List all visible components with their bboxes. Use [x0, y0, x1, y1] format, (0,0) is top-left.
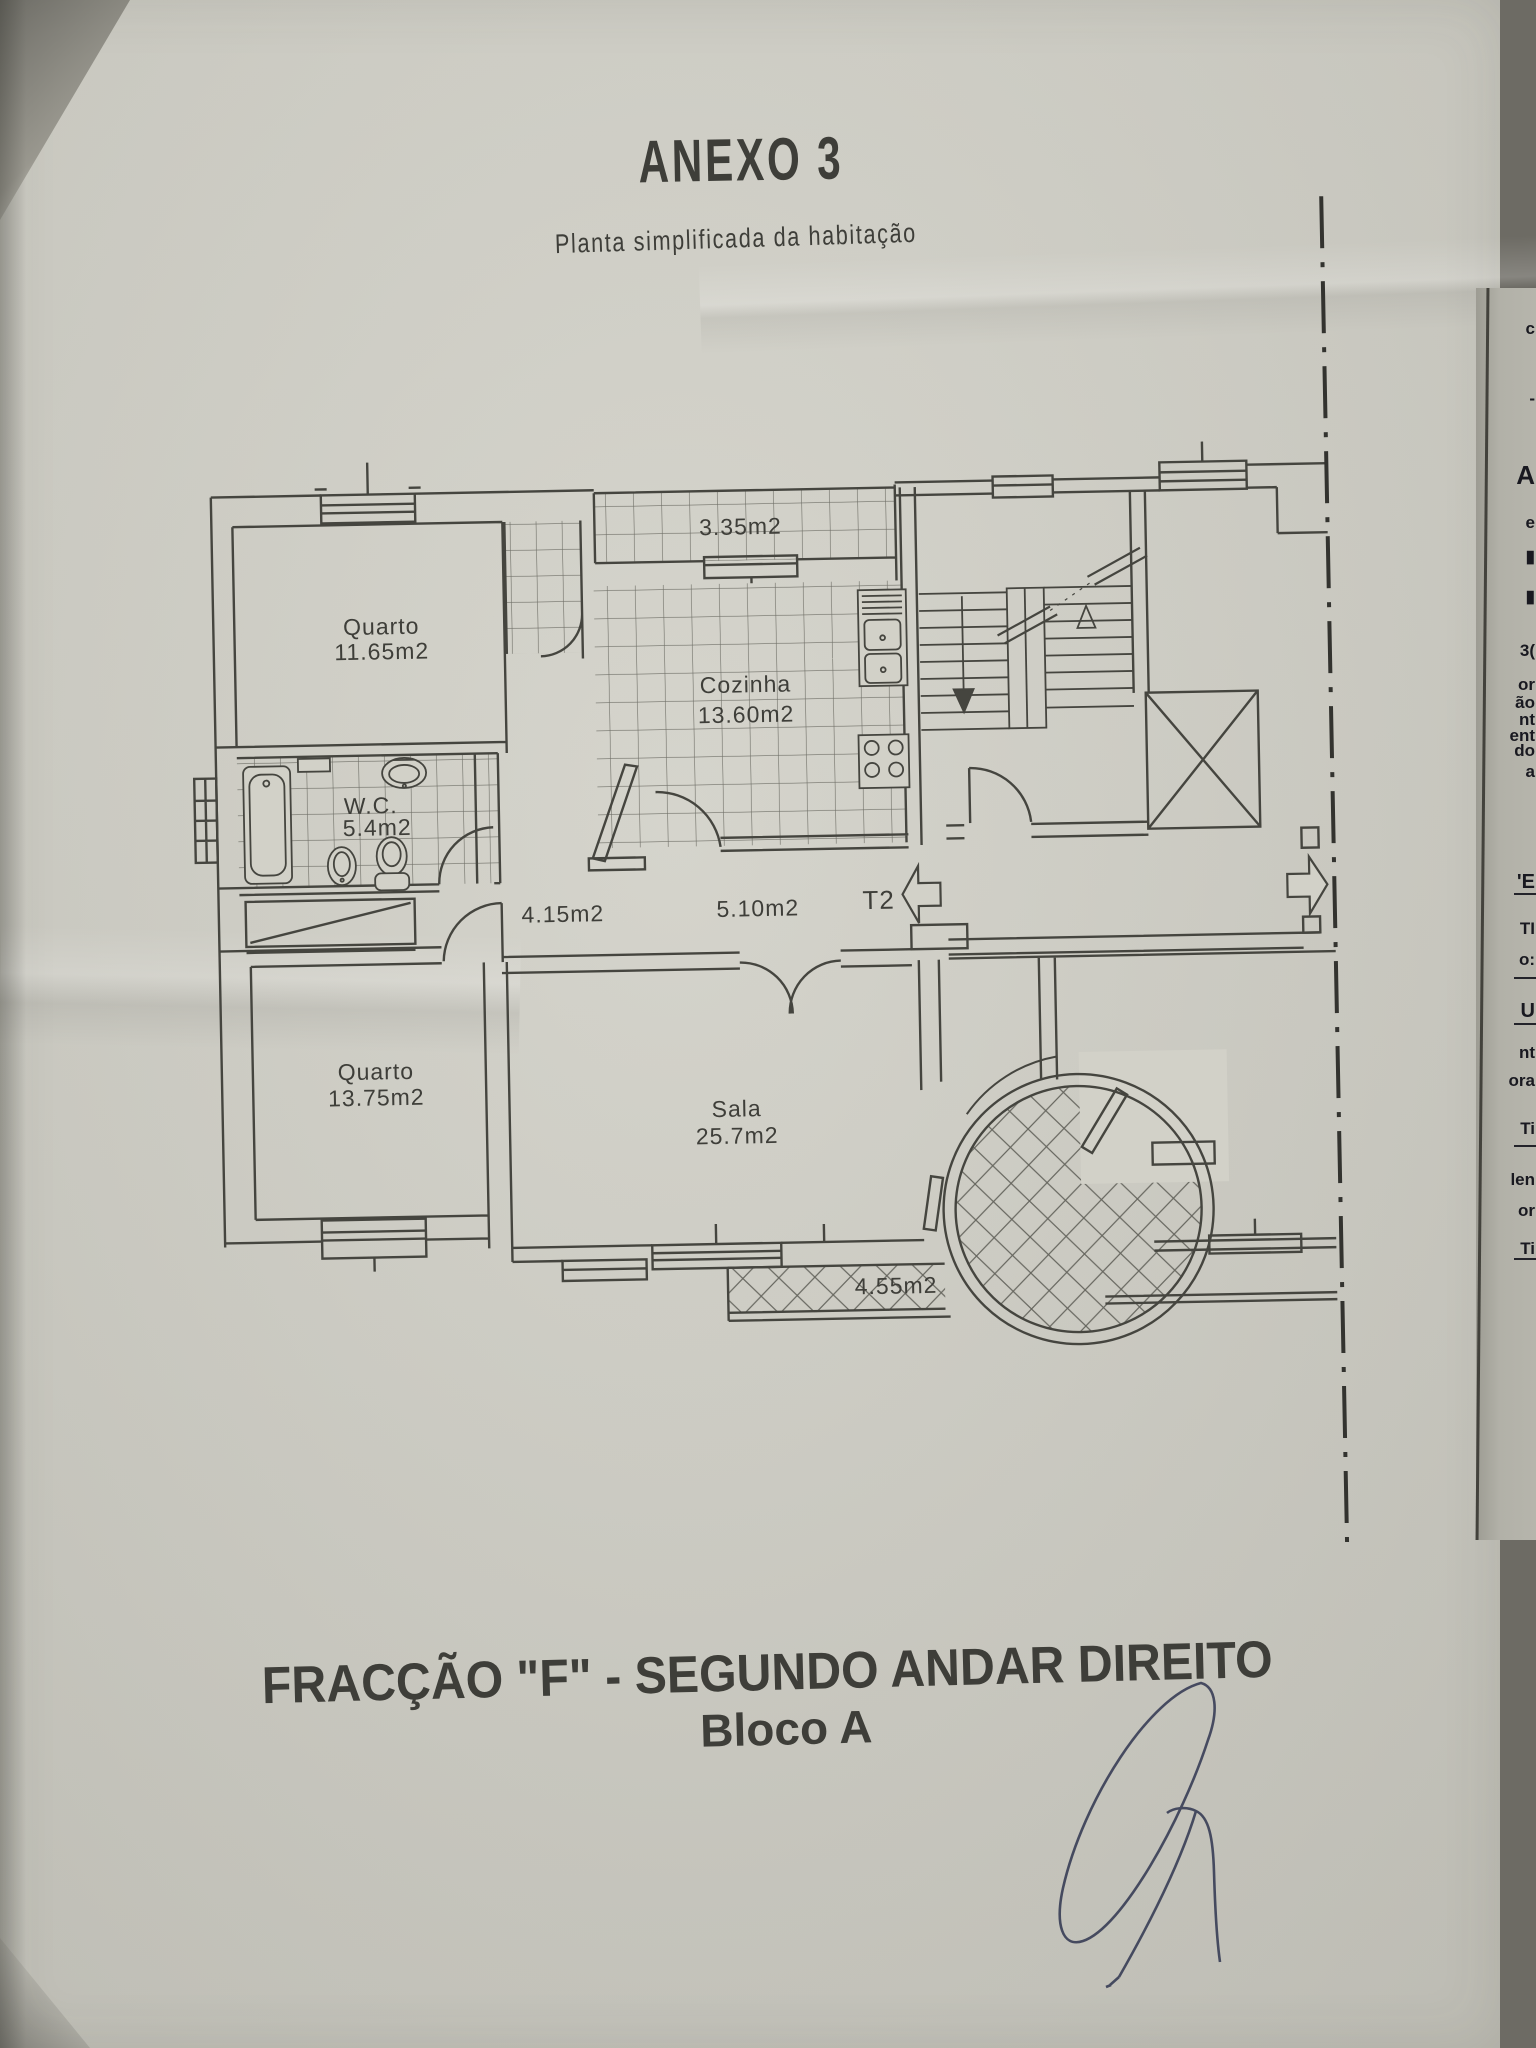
- bedroom2-area: 13.75m2: [328, 1084, 425, 1112]
- wc-shelf: [298, 758, 330, 772]
- washbasin-icon: [382, 758, 427, 789]
- staircase: [918, 548, 1150, 730]
- living-area: 25.7m2: [696, 1122, 779, 1150]
- signature-scribble: [1060, 1683, 1220, 1987]
- balcony-bottom-area: 4.55m2: [854, 1272, 937, 1300]
- kitchen-area: 13.60m2: [698, 700, 795, 728]
- wc-area: 5.4m2: [342, 814, 411, 841]
- scanned-floorplan-page: { "document": { "title": "ANEXO 3", "sub…: [0, 0, 1536, 2048]
- bidet-icon: [328, 847, 357, 886]
- living-label: Sala: [711, 1095, 762, 1122]
- boundary-dash-dot-line: [1321, 196, 1347, 1542]
- bedroom2-label: Quarto: [337, 1058, 414, 1085]
- footer: FRACÇÃO "F" - SEGUNDO ANDAR DIREITO Bloc…: [261, 1630, 1275, 1768]
- page-title: ANEXO 3: [638, 124, 844, 195]
- bedroom1-label: Quarto: [343, 613, 420, 640]
- unit-type-label: T2: [862, 885, 895, 916]
- hall-area: 4.15m2: [521, 900, 604, 928]
- bathtub-icon: [243, 766, 292, 884]
- kitchen-label: Cozinha: [700, 670, 792, 698]
- balcony-top-area: 3.35m2: [699, 513, 782, 541]
- page-subtitle: Planta simplificada da habitação: [555, 218, 918, 259]
- bedroom1-area: 11.65m2: [334, 637, 429, 665]
- block-title: Bloco A: [700, 1700, 873, 1756]
- stair-break-line: [996, 548, 1149, 644]
- stair-up-arrow-icon: [1077, 606, 1095, 628]
- entry-arrow-right-icon: [1287, 856, 1328, 914]
- floorplan-drawing: ANEXO 3 Planta simplificada da habitação: [0, 0, 1536, 2048]
- entry-arrow-left-icon: [902, 866, 941, 924]
- entry-hall-area: 5.10m2: [716, 894, 799, 922]
- kitchen-sink-icon: [858, 589, 908, 686]
- scan-edge-shadow: [0, 0, 26, 2048]
- stove-icon: [858, 734, 909, 788]
- toilet-icon: [374, 837, 409, 891]
